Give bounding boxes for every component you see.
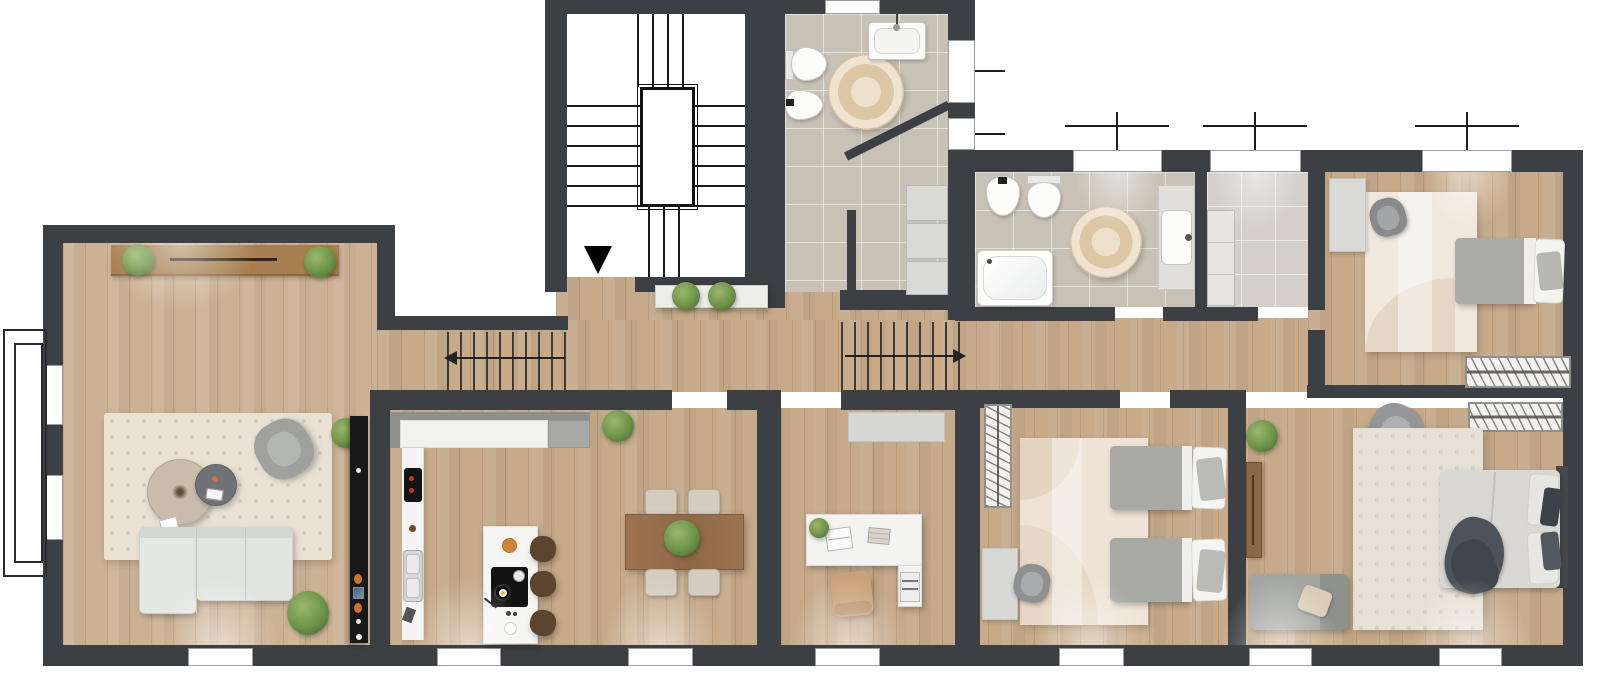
decor-dot xyxy=(356,634,362,640)
desk-plant xyxy=(809,518,829,538)
magazine-file-line xyxy=(902,580,918,582)
jute-rug xyxy=(828,54,904,130)
jute-rug xyxy=(1070,206,1142,278)
dining-chair xyxy=(645,569,677,596)
balcony-outline-inner xyxy=(14,343,43,563)
laundry-cabinet-shelf-line xyxy=(1208,274,1234,275)
bed-accent-pillow xyxy=(1540,531,1562,571)
wall-stairwell-left xyxy=(545,0,567,292)
floor-passage-living xyxy=(377,330,396,392)
window-bottom-dining xyxy=(628,648,693,666)
dining-chair xyxy=(688,569,720,596)
window-living-left-1 xyxy=(45,365,63,425)
wall-kitchen-left xyxy=(370,390,390,645)
stairs-right-flight xyxy=(695,87,745,207)
casement-mark-icon xyxy=(1415,125,1519,127)
master-dresser xyxy=(1246,462,1262,558)
sofa-chaise xyxy=(139,527,197,614)
faucet-icon xyxy=(893,24,900,31)
stair-void xyxy=(640,87,695,207)
magazine-file-line xyxy=(902,588,918,590)
wall-bath2-laundry-divider xyxy=(1195,172,1207,307)
wall-bath2-bottom-b xyxy=(1163,307,1258,321)
sofa-seam xyxy=(245,527,246,600)
coffee-machine xyxy=(404,468,422,502)
magazine-file xyxy=(900,572,920,602)
kitchen-sink-bowl xyxy=(406,578,420,598)
sideboard-handle xyxy=(170,258,277,261)
wall-corridor-bottom-c xyxy=(841,390,960,410)
casement-mark-icon xyxy=(1065,125,1169,127)
bed-accent-pillow xyxy=(1536,251,1564,291)
casement-mark-icon xyxy=(975,70,1005,72)
wall-bathroom1-stub xyxy=(847,210,856,292)
plant xyxy=(122,244,154,276)
sofa-back-band xyxy=(140,527,292,538)
bed-accent-pillow xyxy=(1196,549,1226,593)
stairs-left-flight xyxy=(567,87,640,207)
bedroom1-desk xyxy=(1329,178,1366,252)
wall-dining-office-divider xyxy=(757,390,781,645)
dining-centerpiece-plant xyxy=(664,520,700,556)
desk-books xyxy=(867,527,890,545)
window-top-laundry xyxy=(1210,150,1301,172)
kids-bed-duvet xyxy=(1110,538,1190,602)
wall-bedroom1-left-lower xyxy=(1308,330,1325,390)
washbasin-bowl xyxy=(874,28,920,54)
wall-bottom-band xyxy=(43,645,1583,666)
decor-orange xyxy=(354,574,362,584)
single-bed-duvet xyxy=(1455,238,1533,304)
kitchen-fridge xyxy=(548,420,590,448)
counter-item xyxy=(409,525,416,532)
bidet-faucet-icon xyxy=(786,99,794,106)
floor-plan xyxy=(0,0,1600,673)
wall-office-kids-divider xyxy=(955,390,980,645)
sofa-seam xyxy=(196,527,197,613)
arrow-left-icon xyxy=(444,351,457,365)
kitchen-sink-bowl xyxy=(406,554,420,574)
entry-plant xyxy=(672,282,700,310)
kids-wardrobe xyxy=(984,404,1012,508)
plant xyxy=(304,246,336,278)
coffee-table-decor xyxy=(172,484,188,500)
pan-egg-yolk xyxy=(501,591,505,595)
office-shelf xyxy=(848,412,945,442)
window-bathroom1-side-2 xyxy=(948,118,975,150)
master-dresser-handle xyxy=(1252,475,1254,545)
window-top-bathroom2 xyxy=(1073,150,1162,172)
wall-right-exterior xyxy=(1563,150,1583,666)
bed-accent-pillow xyxy=(1196,457,1227,502)
plant xyxy=(287,591,329,635)
bowl-on-table xyxy=(212,476,218,482)
entry-plant xyxy=(708,282,736,310)
cooktop-pot xyxy=(513,570,525,582)
radiator-unit xyxy=(1465,356,1571,388)
wall-kids-master-divider xyxy=(1228,390,1246,645)
dining-chair xyxy=(645,489,677,516)
decor-orange xyxy=(354,603,362,613)
casement-mark-icon xyxy=(975,133,1005,135)
casement-mark-icon xyxy=(1116,112,1118,150)
casement-mark-icon xyxy=(1203,125,1307,127)
entry-arrow-icon xyxy=(584,246,612,274)
window-bathroom1-top xyxy=(825,0,880,14)
island-plate xyxy=(504,622,517,635)
coffee-machine-light xyxy=(409,488,414,493)
hall-stair-arrow-right-line xyxy=(845,355,955,357)
hall-stair-arrow-left-line xyxy=(453,357,565,359)
laundry-cabinet-shelf-line xyxy=(1208,242,1234,243)
casement-mark-icon xyxy=(1254,112,1256,150)
window-top-bedroom1 xyxy=(1422,150,1512,172)
window-bottom-living xyxy=(188,648,253,666)
window-bottom-master-1 xyxy=(1249,648,1312,666)
window-bathroom1-side-1 xyxy=(948,40,975,103)
wall-corridor-bottom-a xyxy=(370,390,672,410)
kitchen-wall-counter xyxy=(400,420,548,448)
bathtub-drain-icon xyxy=(987,259,992,264)
wall-hallway-top-left xyxy=(377,316,568,330)
plant xyxy=(1246,420,1278,452)
decor-dot xyxy=(356,619,361,624)
bidet-faucet-icon xyxy=(998,177,1007,184)
bathroom-cabinet xyxy=(906,223,948,259)
bathroom-cabinet xyxy=(906,261,948,295)
window-living-left-2 xyxy=(45,475,63,540)
arrow-right-icon xyxy=(953,349,966,363)
bathtub-basin xyxy=(983,256,1047,300)
stairs-bottom-flight xyxy=(648,207,688,277)
casement-mark-icon xyxy=(1466,112,1468,150)
kids-bed-duvet xyxy=(1110,446,1190,510)
window-bottom-kids xyxy=(1059,648,1124,666)
dining-chair xyxy=(688,489,720,516)
salt-pepper-icon xyxy=(513,612,517,616)
plant xyxy=(602,410,634,442)
wall-bath2-bottom-a xyxy=(955,307,1115,321)
salt-pepper-icon xyxy=(506,611,511,616)
bathroom-cabinet xyxy=(906,185,948,221)
kids-rug-band xyxy=(1052,438,1082,625)
stairs-top-flight xyxy=(637,14,697,87)
decor-dot xyxy=(356,468,361,473)
window-bottom-office xyxy=(815,648,880,666)
hall-stair-run-left xyxy=(447,332,567,390)
wall-living-top xyxy=(43,225,395,243)
window-bottom-kitchen xyxy=(437,648,501,666)
faucet-icon xyxy=(1185,234,1192,241)
island-bowl xyxy=(502,538,517,553)
window-bottom-master-2 xyxy=(1439,648,1502,666)
wall-stairwell-top xyxy=(545,0,765,14)
notebook-on-table xyxy=(205,488,223,501)
coffee-machine-light xyxy=(409,476,414,481)
decor-picture xyxy=(353,587,364,599)
wall-bedroom1-left-upper xyxy=(1308,150,1325,310)
laundry-cabinet xyxy=(1207,210,1235,306)
wall-stairwell-bathroom1-divider xyxy=(745,0,785,308)
